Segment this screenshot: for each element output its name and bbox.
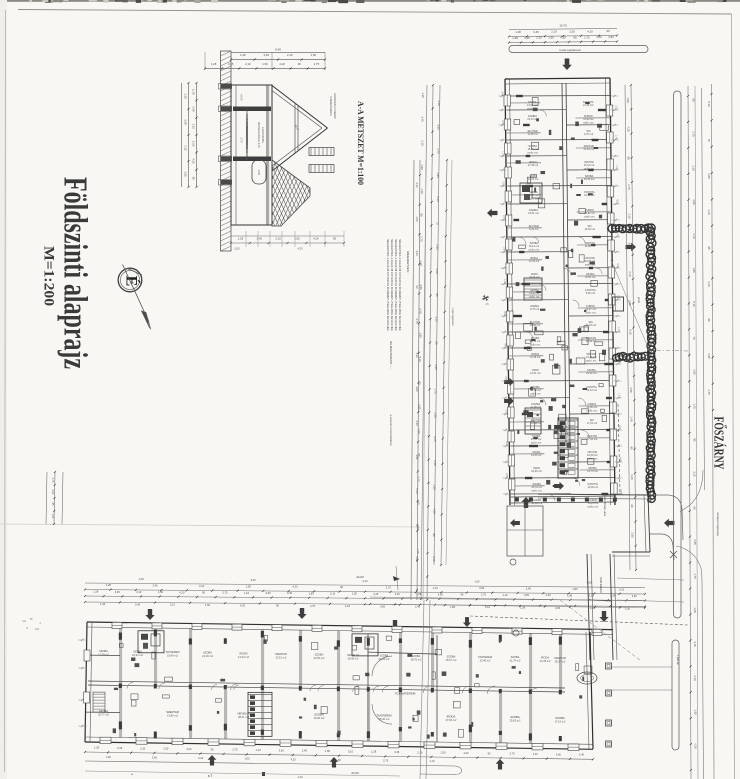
svg-text:16,66 m2: 16,66 m2	[314, 716, 325, 720]
svg-text:KOZLEKEDO: KOZLEKEDO	[599, 577, 603, 593]
svg-text:2,10: 2,10	[170, 603, 176, 607]
svg-text:SZOBA: SZOBA	[99, 649, 108, 653]
svg-text:2,10: 2,10	[184, 145, 188, 151]
svg-text:HODFARKU CSEREP: HODFARKU CSEREP	[333, 93, 337, 119]
svg-text:1,28: 1,28	[238, 237, 244, 241]
svg-text:16,70: 16,70	[559, 24, 567, 28]
svg-text:25,10 m2: 25,10 m2	[531, 438, 542, 441]
svg-text:2,55: 2,55	[693, 539, 697, 545]
svg-text:4,20: 4,20	[291, 757, 297, 761]
svg-text:A-A METSZET M=1:100: A-A METSZET M=1:100	[356, 101, 365, 185]
svg-text:MEGJEGYZES: A FALAK 38 CM VAST: MEGJEGYZES: A FALAK 38 CM VASTAG KISMERE…	[394, 239, 397, 331]
svg-text:95: 95	[707, 247, 711, 250]
svg-text:23,31 m2: 23,31 m2	[531, 486, 542, 489]
svg-text:2,40: 2,40	[51, 490, 54, 495]
svg-text:60: 60	[434, 342, 438, 345]
svg-text:1,50: 1,50	[163, 747, 169, 751]
svg-text:3,45: 3,45	[184, 119, 188, 125]
svg-text:3,60: 3,60	[556, 752, 562, 756]
svg-text:4,57: 4,57	[615, 199, 617, 204]
svg-text:2,75: 2,75	[310, 604, 316, 608]
svg-text:SZOBA: SZOBA	[203, 651, 212, 655]
svg-text:10,94 m2: 10,94 m2	[132, 653, 143, 657]
svg-text:3,15: 3,15	[707, 281, 711, 287]
svg-text:2,40: 2,40	[628, 271, 632, 277]
svg-text:1,50: 1,50	[205, 603, 211, 607]
svg-text:1,28: 1,28	[240, 53, 246, 57]
svg-text:1,75: 1,75	[416, 548, 420, 554]
svg-text:1,75: 1,75	[707, 389, 711, 395]
svg-text:3,45: 3,45	[632, 594, 638, 598]
svg-text:4,20: 4,20	[415, 250, 419, 256]
svg-text:padlo: pvc: padlo: pvc	[529, 249, 540, 251]
svg-text:2,40: 2,40	[302, 749, 308, 753]
svg-text:1,50: 1,50	[311, 53, 317, 57]
svg-text:3,45: 3,45	[693, 641, 697, 647]
svg-text:27,66 m2: 27,66 m2	[446, 718, 457, 722]
svg-text:24,61 m2: 24,61 m2	[528, 212, 539, 215]
svg-text:Lejto egyenese: Lejto egyenese	[451, 309, 454, 327]
svg-text:2,10: 2,10	[415, 182, 419, 188]
svg-text:17,39 m2: 17,39 m2	[528, 164, 539, 167]
svg-text:SZOBA: SZOBA	[99, 709, 109, 713]
svg-text:MEGJEGYZES: A FALAK 38 CM VAST: MEGJEGYZES: A FALAK 38 CM VASTAG KISMERE…	[386, 239, 389, 331]
svg-text:2,10: 2,10	[192, 124, 196, 130]
svg-text:2,10: 2,10	[433, 460, 437, 466]
svg-text:90: 90	[420, 214, 424, 217]
svg-text:90: 90	[606, 29, 610, 33]
svg-text:2,10: 2,10	[420, 140, 424, 146]
svg-text:90: 90	[692, 99, 696, 102]
svg-text:1,20: 1,20	[51, 514, 54, 519]
svg-text:1,10: 1,10	[345, 604, 351, 608]
svg-text:2,40: 2,40	[436, 148, 440, 154]
svg-text:a tervezett utcai homlokzat: a tervezett utcai homlokzat	[389, 415, 393, 446]
svg-text:TANTEREM: TANTEREM	[376, 713, 392, 717]
svg-text:4,20: 4,20	[693, 743, 697, 749]
svg-text:-0,45: -0,45	[257, 169, 261, 175]
svg-text:95: 95	[693, 439, 697, 442]
svg-text:1,10: 1,10	[692, 165, 696, 171]
svg-text:5,10: 5,10	[707, 101, 711, 107]
svg-text:5,10: 5,10	[348, 749, 354, 753]
svg-text:2,10: 2,10	[275, 237, 281, 241]
svg-text:SZOBA: SZOBA	[510, 715, 520, 719]
svg-text:1,28: 1,28	[106, 583, 112, 587]
svg-text:60: 60	[693, 507, 697, 510]
svg-text:0,55: 0,55	[234, 247, 240, 251]
svg-text:60: 60	[630, 505, 634, 508]
svg-text:1,10: 1,10	[429, 759, 435, 763]
svg-text:2,40: 2,40	[287, 591, 293, 595]
svg-text:5,10: 5,10	[436, 196, 440, 202]
svg-text:1,50: 1,50	[415, 216, 419, 222]
svg-text:IRODA: IRODA	[541, 656, 549, 660]
svg-text:70: 70	[692, 337, 696, 340]
svg-text:3,45: 3,45	[394, 750, 400, 754]
svg-text:CSEREPFEDES: CSEREPFEDES	[329, 96, 333, 116]
svg-text:3,45: 3,45	[264, 53, 270, 57]
svg-text:13,88 m2: 13,88 m2	[531, 422, 542, 425]
svg-text:3,60: 3,60	[608, 35, 614, 39]
svg-text:23,46 m2: 23,46 m2	[480, 658, 491, 662]
svg-text:2,97: 2,97	[503, 247, 505, 252]
svg-text:2,75: 2,75	[510, 752, 516, 756]
svg-text:1,40: 1,40	[629, 416, 633, 422]
svg-text:2,10: 2,10	[199, 584, 205, 588]
svg-text:21,51 m2: 21,51 m2	[530, 372, 541, 375]
svg-text:17,46 m2: 17,46 m2	[587, 438, 598, 441]
svg-text:3,45: 3,45	[524, 36, 530, 40]
svg-text:1,28: 1,28	[192, 89, 196, 95]
svg-text:18,70 m2: 18,70 m2	[411, 657, 422, 661]
svg-text:5,10: 5,10	[330, 591, 336, 595]
svg-text:1,50: 1,50	[192, 141, 196, 147]
svg-text:20,99 m2: 20,99 m2	[586, 372, 597, 375]
svg-text:70: 70	[629, 360, 633, 363]
svg-text:padlo: pvc: padlo: pvc	[531, 490, 542, 492]
svg-text:2,75: 2,75	[386, 585, 392, 589]
svg-text:13,86 m2: 13,86 m2	[167, 714, 178, 718]
svg-text:1,39: 1,39	[615, 165, 617, 170]
svg-text:4,08: 4,08	[505, 441, 507, 446]
svg-text:padlo: pvc: padlo: pvc	[528, 152, 539, 154]
svg-text:1,50: 1,50	[440, 751, 446, 755]
svg-text:2,05: 2,05	[415, 556, 419, 562]
svg-text:SZOBA: SZOBA	[511, 655, 520, 659]
svg-text:2,75: 2,75	[481, 593, 487, 597]
svg-text:2,40: 2,40	[546, 593, 552, 597]
svg-text:1,28: 1,28	[693, 607, 697, 613]
svg-text:1,85: 1,85	[309, 591, 315, 595]
svg-text:20,83 m2: 20,83 m2	[585, 276, 596, 279]
svg-text:90: 90	[573, 35, 577, 39]
svg-text:SZERTAR: SZERTAR	[275, 652, 287, 656]
svg-text:1,28: 1,28	[371, 750, 377, 754]
svg-text:12,74 m2: 12,74 m2	[98, 653, 109, 657]
svg-text:IRODA: IRODA	[239, 651, 247, 655]
svg-text:11,58 m2: 11,58 m2	[527, 133, 538, 136]
svg-text:1,50: 1,50	[246, 584, 252, 588]
svg-text:a T: a T	[208, 774, 213, 778]
svg-text:22,66 m2: 22,66 m2	[531, 470, 542, 473]
svg-text:2,75: 2,75	[692, 131, 696, 137]
svg-text:2,10: 2,10	[536, 36, 542, 40]
svg-text:2,75: 2,75	[222, 591, 228, 595]
svg-text:4,87: 4,87	[504, 343, 506, 348]
svg-text:4,56: 4,56	[505, 473, 507, 478]
svg-text:2,05: 2,05	[435, 244, 439, 250]
svg-text:11,86 m2: 11,86 m2	[585, 245, 596, 248]
svg-text:+0,00: +0,00	[240, 94, 244, 101]
svg-text:5,10: 5,10	[589, 594, 595, 598]
svg-text:1,28: 1,28	[138, 577, 144, 581]
svg-text:padlo: pvc: padlo: pvc	[530, 393, 541, 395]
svg-text:1,75: 1,75	[693, 573, 697, 579]
svg-text:2,40: 2,40	[692, 233, 696, 239]
svg-text:4,20: 4,20	[420, 188, 424, 194]
svg-text:4,20: 4,20	[560, 36, 566, 40]
svg-text:3,60: 3,60	[415, 386, 419, 392]
svg-text:4,20: 4,20	[313, 237, 319, 241]
svg-text:25,63 m2: 25,63 m2	[510, 719, 521, 723]
svg-text:1,40: 1,40	[707, 209, 711, 215]
svg-text:70: 70	[707, 139, 711, 142]
svg-text:21,74 m2: 21,74 m2	[510, 659, 521, 663]
svg-text:5,10: 5,10	[628, 329, 632, 335]
svg-text:1,50: 1,50	[474, 580, 480, 584]
svg-text:3,15: 3,15	[630, 474, 634, 480]
svg-text:21,29 m2: 21,29 m2	[202, 654, 213, 658]
svg-text:8,76 m2: 8,76 m2	[530, 308, 540, 311]
svg-text:21,95 m2: 21,95 m2	[583, 104, 594, 107]
svg-text:15,13 m2: 15,13 m2	[584, 164, 595, 167]
svg-text:2,55: 2,55	[434, 364, 438, 370]
svg-text:4,59: 4,59	[617, 359, 619, 364]
svg-text:4,20: 4,20	[279, 62, 285, 66]
svg-text:1,28: 1,28	[184, 93, 188, 99]
svg-text:14,61 m2: 14,61 m2	[528, 178, 539, 181]
svg-text:3,60: 3,60	[380, 604, 386, 608]
svg-text:18,69 m2: 18,69 m2	[587, 454, 598, 457]
svg-text:1,50: 1,50	[184, 171, 188, 177]
svg-text:3,45: 3,45	[192, 106, 196, 112]
svg-text:1,50: 1,50	[626, 97, 630, 103]
svg-text:1,50: 1,50	[625, 606, 631, 610]
svg-text:4,20: 4,20	[586, 581, 592, 585]
svg-text:2,75: 2,75	[419, 236, 423, 242]
svg-text:5,10: 5,10	[619, 587, 625, 591]
svg-text:2,40: 2,40	[526, 587, 532, 591]
svg-text:1,10: 1,10	[437, 100, 441, 106]
svg-text:2,55: 2,55	[631, 532, 635, 538]
svg-text:12,34 m2: 12,34 m2	[586, 389, 597, 392]
svg-text:17,61 m2: 17,61 m2	[587, 422, 598, 425]
svg-text:1,10: 1,10	[627, 213, 631, 219]
svg-text:1,10: 1,10	[533, 752, 539, 756]
svg-text:2,55: 2,55	[707, 353, 711, 359]
svg-text:3,36: 3,36	[616, 263, 618, 268]
svg-text:1,85: 1,85	[450, 605, 456, 609]
svg-text:25,52 m2: 25,52 m2	[584, 212, 595, 215]
svg-text:3,60: 3,60	[524, 593, 530, 597]
svg-text:1,28: 1,28	[93, 590, 99, 594]
svg-text:BELMAGASSAG 3,10: BELMAGASSAG 3,10	[257, 122, 261, 148]
svg-text:1,70: 1,70	[51, 478, 54, 483]
svg-text:44,60: 44,60	[351, 771, 359, 775]
svg-text:3,45: 3,45	[135, 602, 141, 606]
svg-text:padlo: pvc: padlo: pvc	[584, 168, 595, 170]
svg-text:SZOBA: SZOBA	[315, 652, 324, 656]
svg-text:padlo: pvc: padlo: pvc	[585, 264, 596, 266]
svg-text:3,15: 3,15	[435, 316, 439, 322]
svg-text:1,50: 1,50	[158, 590, 164, 594]
svg-text:3,60: 3,60	[628, 242, 632, 248]
svg-text:1 jelu ep.: 1 jelu ep.	[676, 655, 679, 665]
svg-text:2,05: 2,05	[707, 173, 711, 179]
svg-text:4,20: 4,20	[432, 508, 436, 514]
svg-text:1,50: 1,50	[433, 484, 437, 490]
svg-text:2,75: 2,75	[383, 759, 389, 763]
svg-text:4,20: 4,20	[626, 126, 630, 132]
svg-text:1,82: 1,82	[617, 295, 619, 300]
svg-text:4,20: 4,20	[186, 747, 192, 751]
svg-text:3,45: 3,45	[115, 590, 121, 594]
svg-text:8,24 m2: 8,24 m2	[529, 228, 539, 231]
svg-text:2,75: 2,75	[233, 748, 239, 752]
svg-text:1,50: 1,50	[244, 757, 250, 761]
svg-text:9,40: 9,40	[275, 48, 281, 52]
svg-text:2,10: 2,10	[362, 579, 368, 583]
svg-text:MEGJEGYZES: A FALAK 38 CM VAST: MEGJEGYZES: A FALAK 38 CM VASTAG KISMERE…	[398, 239, 401, 331]
svg-text:70: 70	[436, 222, 440, 225]
svg-text:15,57 m2: 15,57 m2	[446, 658, 457, 662]
svg-text:1,10: 1,10	[432, 586, 438, 590]
svg-text:SZOBA: SZOBA	[447, 654, 456, 658]
svg-text:1,28: 1,28	[421, 92, 425, 98]
svg-text:14,65 m2: 14,65 m2	[531, 454, 542, 457]
svg-text:5,10: 5,10	[692, 301, 696, 307]
svg-text:90: 90	[333, 237, 337, 241]
svg-text:3,60: 3,60	[479, 586, 485, 590]
svg-text:1,85: 1,85	[415, 454, 419, 460]
svg-text:1,85: 1,85	[692, 267, 696, 273]
svg-text:3,45: 3,45	[373, 592, 379, 596]
svg-text:26,77 m2: 26,77 m2	[98, 713, 109, 717]
svg-text:3,60: 3,60	[692, 199, 696, 205]
svg-text:2,75: 2,75	[415, 318, 419, 324]
svg-text:1,85: 1,85	[436, 172, 440, 178]
svg-text:1,28: 1,28	[211, 62, 217, 66]
svg-text:3,45: 3,45	[533, 30, 539, 34]
svg-text:2,70 PADLOVONAL: 2,70 PADLOVONAL	[245, 138, 249, 162]
svg-text:IRODA: IRODA	[447, 714, 456, 718]
svg-text:44,60: 44,60	[356, 575, 364, 579]
svg-text:JELMAGYARAZAT ----: JELMAGYARAZAT ----	[389, 341, 393, 369]
svg-text:11,48 m2: 11,48 m2	[530, 356, 541, 359]
svg-text:22,54 m2: 22,54 m2	[584, 148, 595, 151]
svg-text:4,20: 4,20	[240, 603, 246, 607]
svg-text:2,40: 2,40	[415, 420, 419, 426]
svg-text:MEGJEGYZES:: MEGJEGYZES:	[406, 251, 410, 273]
svg-text:9,70 m2: 9,70 m2	[584, 133, 594, 136]
svg-text:padlo: pvc: padlo: pvc	[583, 122, 594, 124]
svg-text:padlo: pvc: padlo: pvc	[530, 344, 541, 346]
svg-text:3,45: 3,45	[257, 237, 263, 241]
svg-text:2,75: 2,75	[584, 35, 590, 39]
svg-text:3,25: 3,25	[502, 181, 504, 186]
svg-text:2,0: 2,0	[35, 627, 39, 631]
svg-text:1,50: 1,50	[548, 36, 554, 40]
svg-text:3,35: 3,35	[614, 105, 616, 110]
svg-text:2,30: 2,30	[501, 120, 503, 125]
svg-text:2,10: 2,10	[417, 750, 423, 754]
svg-text:4,20: 4,20	[587, 29, 593, 33]
svg-text:1,50: 1,50	[569, 29, 575, 33]
svg-text:1,10: 1,10	[596, 35, 602, 39]
svg-text:1,18: 1,18	[501, 151, 503, 156]
svg-text:1,28: 1,28	[100, 602, 106, 606]
svg-text:2,05: 2,05	[692, 369, 696, 375]
svg-text:2,75: 2,75	[432, 556, 436, 562]
svg-text:13,99 m2: 13,99 m2	[583, 118, 594, 121]
svg-text:1 jelu epuletresz: 1 jelu epuletresz	[559, 48, 581, 52]
svg-text:19,89 m2: 19,89 m2	[167, 654, 178, 658]
svg-text:3,80: 3,80	[504, 376, 506, 381]
svg-text:1,2: 1,2	[22, 619, 26, 623]
svg-text:1,50: 1,50	[693, 709, 697, 715]
svg-text:1,20: 1,20	[297, 775, 303, 779]
svg-text:Talalo Mihaly utca: Talalo Mihaly utca	[603, 494, 607, 517]
svg-text:4,20: 4,20	[438, 592, 444, 596]
svg-text:1,10: 1,10	[502, 593, 508, 597]
svg-text:25,97 m2: 25,97 m2	[585, 308, 596, 311]
svg-text:Földszinti alaprajz: Földszinti alaprajz	[57, 177, 94, 369]
svg-text:16,14 m2: 16,14 m2	[529, 245, 540, 248]
svg-text:TANTEREM: TANTEREM	[165, 650, 179, 654]
svg-text:4,20: 4,20	[292, 585, 298, 589]
svg-text:21,54 m2: 21,54 m2	[529, 260, 540, 263]
svg-text:14,33 m2: 14,33 m2	[238, 655, 249, 659]
svg-text:MEGJEGYZES: A FALAK 38 CM VAST: MEGJEGYZES: A FALAK 38 CM VASTAG KISMERE…	[390, 239, 393, 331]
svg-text:3,44: 3,44	[501, 91, 503, 96]
svg-text:28,27 m2: 28,27 m2	[555, 659, 566, 663]
svg-text:3,45: 3,45	[152, 755, 158, 759]
svg-text:padlo: pvc: padlo: pvc	[586, 360, 597, 362]
svg-text:1,85: 1,85	[572, 587, 578, 591]
svg-text:90: 90	[192, 177, 196, 181]
svg-text:90: 90	[298, 62, 302, 66]
svg-text:1,10: 1,10	[256, 748, 262, 752]
svg-text:2,05: 2,05	[629, 387, 633, 393]
svg-text:1,85: 1,85	[325, 749, 331, 753]
svg-text:3,45: 3,45	[433, 436, 437, 442]
svg-text:1,28: 1,28	[515, 30, 521, 34]
svg-text:3,45: 3,45	[152, 584, 158, 588]
svg-text:14,75 m2: 14,75 m2	[587, 470, 598, 473]
svg-text:28,46 m2: 28,46 m2	[348, 656, 359, 660]
svg-text:1,50: 1,50	[420, 164, 424, 170]
svg-text:18,45 m2: 18,45 m2	[584, 178, 595, 181]
svg-text:3,15: 3,15	[693, 471, 697, 477]
svg-text:2,75: 2,75	[314, 62, 320, 66]
svg-text:60: 60	[707, 319, 711, 322]
svg-text:95: 95	[435, 294, 439, 297]
svg-text:4,25: 4,25	[297, 247, 303, 251]
svg-text:1,28: 1,28	[352, 592, 358, 596]
svg-text:3,60: 3,60	[279, 748, 285, 752]
svg-text:2,10: 2,10	[140, 746, 146, 750]
svg-text:4,59: 4,59	[503, 311, 505, 316]
svg-text:LAKOSZOBA: LAKOSZOBA	[261, 127, 265, 143]
svg-text:1,22: 1,22	[503, 279, 505, 284]
svg-text:3,19: 3,19	[504, 409, 506, 414]
svg-text:3,60: 3,60	[437, 124, 441, 130]
svg-text:4,20: 4,20	[192, 158, 196, 164]
svg-text:1,57: 1,57	[618, 393, 620, 398]
svg-text:padlo: pvc: padlo: pvc	[588, 506, 599, 508]
svg-text:1,28: 1,28	[106, 755, 112, 759]
svg-text:1,28: 1,28	[94, 746, 100, 750]
svg-text:9,65 m2: 9,65 m2	[586, 292, 596, 295]
svg-text:14,35 m2: 14,35 m2	[540, 659, 551, 663]
svg-text:2,10: 2,10	[136, 590, 142, 594]
svg-text:TANTEREM: TANTEREM	[478, 655, 492, 659]
svg-text:2,10: 2,10	[198, 756, 204, 760]
svg-text:1,85: 1,85	[567, 593, 573, 597]
svg-text:1,10: 1,10	[415, 352, 419, 358]
svg-text:22,56 m2: 22,56 m2	[314, 656, 325, 660]
